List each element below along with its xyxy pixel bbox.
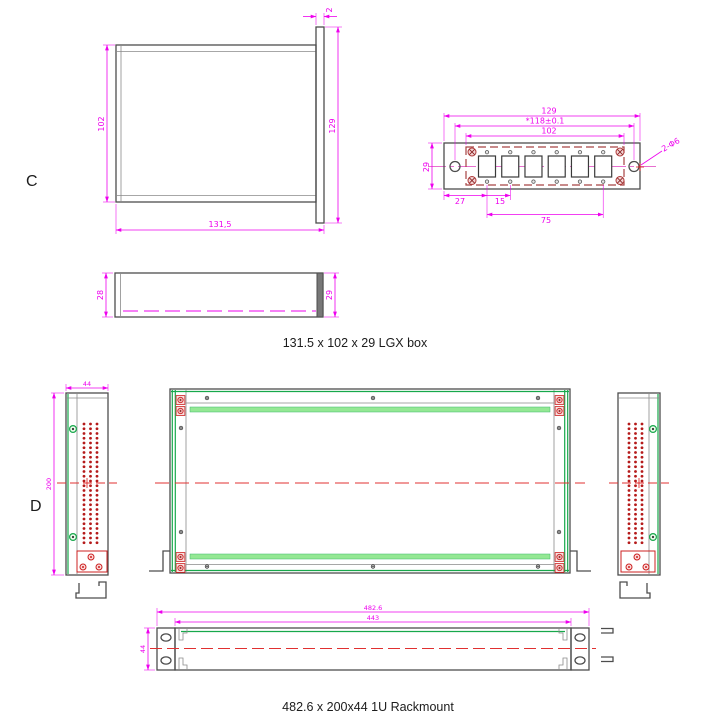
vent-hole bbox=[634, 456, 637, 459]
vent-hole bbox=[641, 451, 644, 454]
vent-hole bbox=[96, 461, 99, 464]
vent-hole bbox=[89, 522, 92, 525]
pin-hole bbox=[602, 180, 605, 183]
adapter-cutout bbox=[502, 156, 519, 177]
vent-hole bbox=[89, 518, 92, 521]
pin-hole bbox=[555, 180, 558, 183]
vent-hole bbox=[83, 437, 86, 440]
adapter-cutout bbox=[479, 156, 496, 177]
ear-slot-hole bbox=[161, 657, 171, 664]
rackmount-caption: 482.6 x 200x44 1U Rackmount bbox=[282, 700, 454, 714]
vent-hole bbox=[83, 475, 86, 478]
vent-hole bbox=[96, 423, 99, 426]
vent-hole bbox=[96, 522, 99, 525]
vent-hole bbox=[641, 446, 644, 449]
vent-hole bbox=[634, 532, 637, 535]
vent-hole bbox=[96, 541, 99, 544]
vent-hole bbox=[634, 499, 637, 502]
vent-hole bbox=[641, 423, 644, 426]
vent-hole bbox=[634, 513, 637, 516]
vent-hole bbox=[96, 518, 99, 521]
ear-bracket-side-profile-top bbox=[601, 629, 613, 634]
screw-center bbox=[559, 567, 561, 569]
adapter-cutout bbox=[595, 156, 612, 177]
vent-hole bbox=[83, 513, 86, 516]
vent-hole bbox=[641, 475, 644, 478]
vent-hole bbox=[96, 446, 99, 449]
vent-hole bbox=[83, 456, 86, 459]
lgx-caption: 131.5 x 102 x 29 LGX box bbox=[283, 336, 428, 350]
vent-hole bbox=[641, 499, 644, 502]
vent-hole bbox=[628, 518, 631, 521]
vent-hole bbox=[89, 451, 92, 454]
vent-hole bbox=[89, 427, 92, 430]
vent-hole bbox=[628, 423, 631, 426]
pin-hole bbox=[532, 180, 535, 183]
front-left-top-hook bbox=[179, 629, 187, 640]
dim-200-label: 200 bbox=[45, 478, 53, 490]
vent-hole bbox=[89, 484, 92, 487]
vent-hole bbox=[89, 503, 92, 506]
rack-top-view bbox=[149, 389, 591, 573]
vent-hole bbox=[83, 484, 86, 487]
screw-center bbox=[206, 397, 207, 398]
vent-hole bbox=[89, 499, 92, 502]
vent-hole bbox=[634, 494, 637, 497]
vent-hole bbox=[96, 470, 99, 473]
dim-2-label: 2 bbox=[325, 7, 334, 12]
rack-left-foot-flange bbox=[149, 551, 170, 571]
vent-hole bbox=[83, 446, 86, 449]
dim-29-label: 29 bbox=[325, 290, 334, 300]
screw-center bbox=[537, 397, 538, 398]
screw-center bbox=[372, 397, 373, 398]
vent-hole bbox=[634, 427, 637, 430]
vent-hole bbox=[628, 527, 631, 530]
rack-body-outline bbox=[170, 389, 570, 573]
front-body-outline bbox=[175, 628, 571, 670]
vent-hole bbox=[641, 442, 644, 445]
vent-hole bbox=[628, 427, 631, 430]
lgx-side-flange-edge bbox=[317, 273, 323, 317]
vent-hole bbox=[89, 465, 92, 468]
pin-hole bbox=[578, 180, 581, 183]
screw-center bbox=[206, 566, 207, 567]
vent-hole bbox=[641, 480, 644, 483]
vent-hole bbox=[634, 522, 637, 525]
screw-center bbox=[72, 428, 74, 430]
vent-hole bbox=[634, 541, 637, 544]
vent-hole bbox=[628, 437, 631, 440]
vent-hole bbox=[83, 532, 86, 535]
vent-hole bbox=[83, 427, 86, 430]
screw-center bbox=[180, 427, 181, 428]
rack-bottom-green-bar bbox=[190, 554, 550, 559]
vent-hole bbox=[641, 513, 644, 516]
vent-hole bbox=[634, 475, 637, 478]
dim-fp-129-label: 129 bbox=[541, 107, 556, 116]
ear-slot-hole bbox=[161, 634, 171, 641]
front-right-top-hook bbox=[559, 629, 567, 640]
vent-hole bbox=[83, 508, 86, 511]
right-bracket-profile bbox=[620, 582, 650, 598]
vent-hole bbox=[634, 489, 637, 492]
section-c-label: C bbox=[26, 173, 38, 190]
drawing-canvas: C 102 129 2 131,5 bbox=[0, 0, 706, 727]
leader-line-2-d6 bbox=[641, 151, 662, 165]
vent-hole bbox=[628, 489, 631, 492]
vent-hole bbox=[628, 503, 631, 506]
vent-hole bbox=[641, 489, 644, 492]
vent-hole bbox=[641, 527, 644, 530]
screw-center bbox=[372, 566, 373, 567]
section-d-label: D bbox=[30, 498, 42, 515]
vent-hole bbox=[96, 437, 99, 440]
lgx-top-view: 102 129 2 131,5 bbox=[97, 7, 342, 234]
ear-slot-hole bbox=[575, 634, 585, 641]
vent-hole bbox=[641, 541, 644, 544]
vent-hole bbox=[89, 475, 92, 478]
vent-hole bbox=[634, 503, 637, 506]
vent-hole bbox=[83, 537, 86, 540]
vent-hole bbox=[89, 537, 92, 540]
screw-center bbox=[636, 556, 638, 558]
vent-hole bbox=[634, 451, 637, 454]
vent-hole bbox=[628, 456, 631, 459]
vent-hole bbox=[634, 470, 637, 473]
screw-center bbox=[537, 566, 538, 567]
vent-hole bbox=[628, 522, 631, 525]
vent-hole bbox=[628, 484, 631, 487]
vent-hole bbox=[628, 475, 631, 478]
vent-hole bbox=[96, 451, 99, 454]
vent-hole bbox=[83, 470, 86, 473]
vent-hole bbox=[628, 508, 631, 511]
vent-hole bbox=[96, 532, 99, 535]
vent-hole bbox=[641, 508, 644, 511]
vent-hole bbox=[89, 442, 92, 445]
vent-hole bbox=[641, 503, 644, 506]
pin-hole bbox=[509, 180, 512, 183]
dim-2-d6-label: 2-Φ6 bbox=[660, 136, 681, 153]
rack-front-view: 482.6 443 44 bbox=[139, 604, 613, 670]
vent-hole bbox=[89, 470, 92, 473]
vent-hole bbox=[628, 442, 631, 445]
vent-hole bbox=[83, 451, 86, 454]
vent-hole bbox=[96, 480, 99, 483]
vent-hole bbox=[641, 522, 644, 525]
vent-hole bbox=[634, 480, 637, 483]
rack-right-foot-flange bbox=[570, 551, 591, 571]
vent-hole bbox=[89, 541, 92, 544]
screw-center bbox=[90, 556, 92, 558]
vent-hole bbox=[628, 446, 631, 449]
vent-hole bbox=[628, 451, 631, 454]
screw-center bbox=[645, 566, 647, 568]
vent-hole bbox=[641, 461, 644, 464]
vent-hole bbox=[83, 518, 86, 521]
ear-slot-hole bbox=[575, 657, 585, 664]
vent-hole bbox=[89, 461, 92, 464]
vent-hole bbox=[89, 532, 92, 535]
vent-hole bbox=[628, 499, 631, 502]
vent-hole bbox=[96, 432, 99, 435]
vent-hole bbox=[628, 532, 631, 535]
dim-102-label: 102 bbox=[97, 116, 106, 131]
dim-fp-27-label: 27 bbox=[455, 197, 465, 206]
pin-hole bbox=[485, 180, 488, 183]
vent-hole bbox=[89, 446, 92, 449]
screw-center bbox=[180, 531, 181, 532]
dim-fp-75-label: 75 bbox=[541, 216, 551, 225]
left-bracket-profile bbox=[76, 582, 106, 598]
screw-center bbox=[180, 399, 182, 401]
pin-hole bbox=[532, 151, 535, 154]
dim-front-44-label: 44 bbox=[139, 645, 147, 653]
screw-center bbox=[180, 556, 182, 558]
vent-hole bbox=[83, 461, 86, 464]
lgx-side-outline bbox=[115, 273, 323, 317]
vent-hole bbox=[641, 494, 644, 497]
vent-hole bbox=[89, 489, 92, 492]
dim-fp-102-label: 102 bbox=[541, 127, 556, 136]
vent-hole bbox=[628, 541, 631, 544]
vent-hole bbox=[83, 480, 86, 483]
vent-hole bbox=[96, 427, 99, 430]
pin-hole bbox=[509, 151, 512, 154]
vent-hole bbox=[96, 456, 99, 459]
vent-hole bbox=[641, 470, 644, 473]
vent-hole bbox=[89, 437, 92, 440]
adapter-cutout bbox=[548, 156, 565, 177]
engineering-drawing-sheet: C 102 129 2 131,5 bbox=[0, 0, 706, 727]
front-right-bottom-hook bbox=[559, 658, 567, 669]
vent-hole bbox=[96, 484, 99, 487]
lgx-body-outline bbox=[116, 45, 316, 202]
lgx-flange-plate bbox=[316, 27, 324, 223]
vent-hole bbox=[641, 484, 644, 487]
vent-hole bbox=[89, 513, 92, 516]
vent-hole bbox=[96, 499, 99, 502]
screw-center bbox=[652, 428, 654, 430]
adapter-cutout bbox=[525, 156, 542, 177]
vent-hole bbox=[83, 522, 86, 525]
vent-hole bbox=[96, 513, 99, 516]
screw-center bbox=[180, 567, 182, 569]
vent-hole bbox=[634, 465, 637, 468]
dim-fp-118-label: *118±0.1 bbox=[526, 117, 565, 126]
dim-44-label: 44 bbox=[83, 380, 91, 388]
screw-center bbox=[559, 556, 561, 558]
dim-482-6-label: 482.6 bbox=[364, 604, 383, 612]
vent-hole bbox=[83, 423, 86, 426]
screw-center bbox=[72, 536, 74, 538]
vent-hole bbox=[89, 456, 92, 459]
ear-bracket-side-profile-bottom bbox=[601, 657, 613, 662]
vent-hole bbox=[83, 494, 86, 497]
vent-hole bbox=[641, 465, 644, 468]
vent-hole bbox=[628, 494, 631, 497]
vent-hole bbox=[641, 432, 644, 435]
vent-hole bbox=[634, 461, 637, 464]
dim-fp-15-label: 15 bbox=[495, 197, 505, 206]
screw-center bbox=[558, 531, 559, 532]
vent-hole bbox=[641, 537, 644, 540]
vent-hole bbox=[89, 480, 92, 483]
vent-hole bbox=[83, 442, 86, 445]
vent-hole bbox=[96, 537, 99, 540]
vent-hole bbox=[83, 489, 86, 492]
vent-hole bbox=[83, 432, 86, 435]
vent-hole bbox=[628, 480, 631, 483]
dim-28-label: 28 bbox=[96, 290, 105, 300]
screw-center bbox=[180, 410, 182, 412]
vent-hole bbox=[634, 518, 637, 521]
rack-right-side-panel bbox=[609, 393, 669, 598]
pin-hole bbox=[485, 151, 488, 154]
dim-131-5-label: 131,5 bbox=[209, 220, 232, 229]
vent-hole bbox=[96, 494, 99, 497]
vent-hole bbox=[89, 423, 92, 426]
vent-hole bbox=[628, 513, 631, 516]
dim-fp-29-label: 29 bbox=[422, 162, 431, 172]
vent-hole bbox=[634, 432, 637, 435]
vent-hole bbox=[89, 527, 92, 530]
adapter-cutout bbox=[571, 156, 588, 177]
vent-hole bbox=[96, 527, 99, 530]
vent-hole bbox=[89, 508, 92, 511]
vent-hole bbox=[83, 465, 86, 468]
vent-hole bbox=[641, 427, 644, 430]
vent-hole bbox=[628, 432, 631, 435]
vent-hole bbox=[634, 508, 637, 511]
front-left-bottom-hook bbox=[179, 658, 187, 669]
screw-center bbox=[628, 566, 630, 568]
dim-129-label: 129 bbox=[328, 118, 337, 133]
vent-hole bbox=[634, 446, 637, 449]
vent-hole bbox=[634, 437, 637, 440]
rack-small-screws bbox=[179, 396, 561, 568]
vent-hole bbox=[83, 499, 86, 502]
vent-hole bbox=[89, 494, 92, 497]
vent-hole bbox=[641, 437, 644, 440]
vent-hole bbox=[641, 518, 644, 521]
pin-hole bbox=[578, 151, 581, 154]
vent-hole bbox=[83, 503, 86, 506]
vent-hole bbox=[96, 442, 99, 445]
dim-443-label: 443 bbox=[367, 614, 379, 622]
vent-hole bbox=[634, 527, 637, 530]
vent-hole bbox=[641, 456, 644, 459]
screw-center bbox=[559, 410, 561, 412]
vent-hole bbox=[96, 503, 99, 506]
screw-center bbox=[98, 566, 100, 568]
vent-hole bbox=[628, 465, 631, 468]
vent-hole bbox=[83, 541, 86, 544]
pin-hole bbox=[602, 151, 605, 154]
vent-hole bbox=[96, 508, 99, 511]
screw-center bbox=[652, 536, 654, 538]
pin-hole bbox=[555, 151, 558, 154]
vent-hole bbox=[83, 527, 86, 530]
vent-hole bbox=[634, 423, 637, 426]
vent-hole bbox=[628, 537, 631, 540]
vent-hole bbox=[641, 532, 644, 535]
vent-hole bbox=[628, 470, 631, 473]
vent-hole bbox=[96, 465, 99, 468]
lgx-faceplate-view: 2-Φ6 129 *118±0.1 102 29 27 15 75 bbox=[422, 107, 681, 226]
vent-hole bbox=[634, 484, 637, 487]
rack-corner-screws bbox=[176, 396, 564, 573]
vent-hole bbox=[96, 475, 99, 478]
vent-hole bbox=[634, 442, 637, 445]
lgx-side-view: 28 29 bbox=[96, 273, 339, 317]
vent-hole bbox=[628, 461, 631, 464]
screw-center bbox=[559, 399, 561, 401]
rack-top-green-bar bbox=[190, 407, 550, 412]
screw-center bbox=[558, 427, 559, 428]
vent-hole bbox=[89, 432, 92, 435]
vent-hole bbox=[96, 489, 99, 492]
vent-hole bbox=[634, 537, 637, 540]
screw-center bbox=[82, 566, 84, 568]
